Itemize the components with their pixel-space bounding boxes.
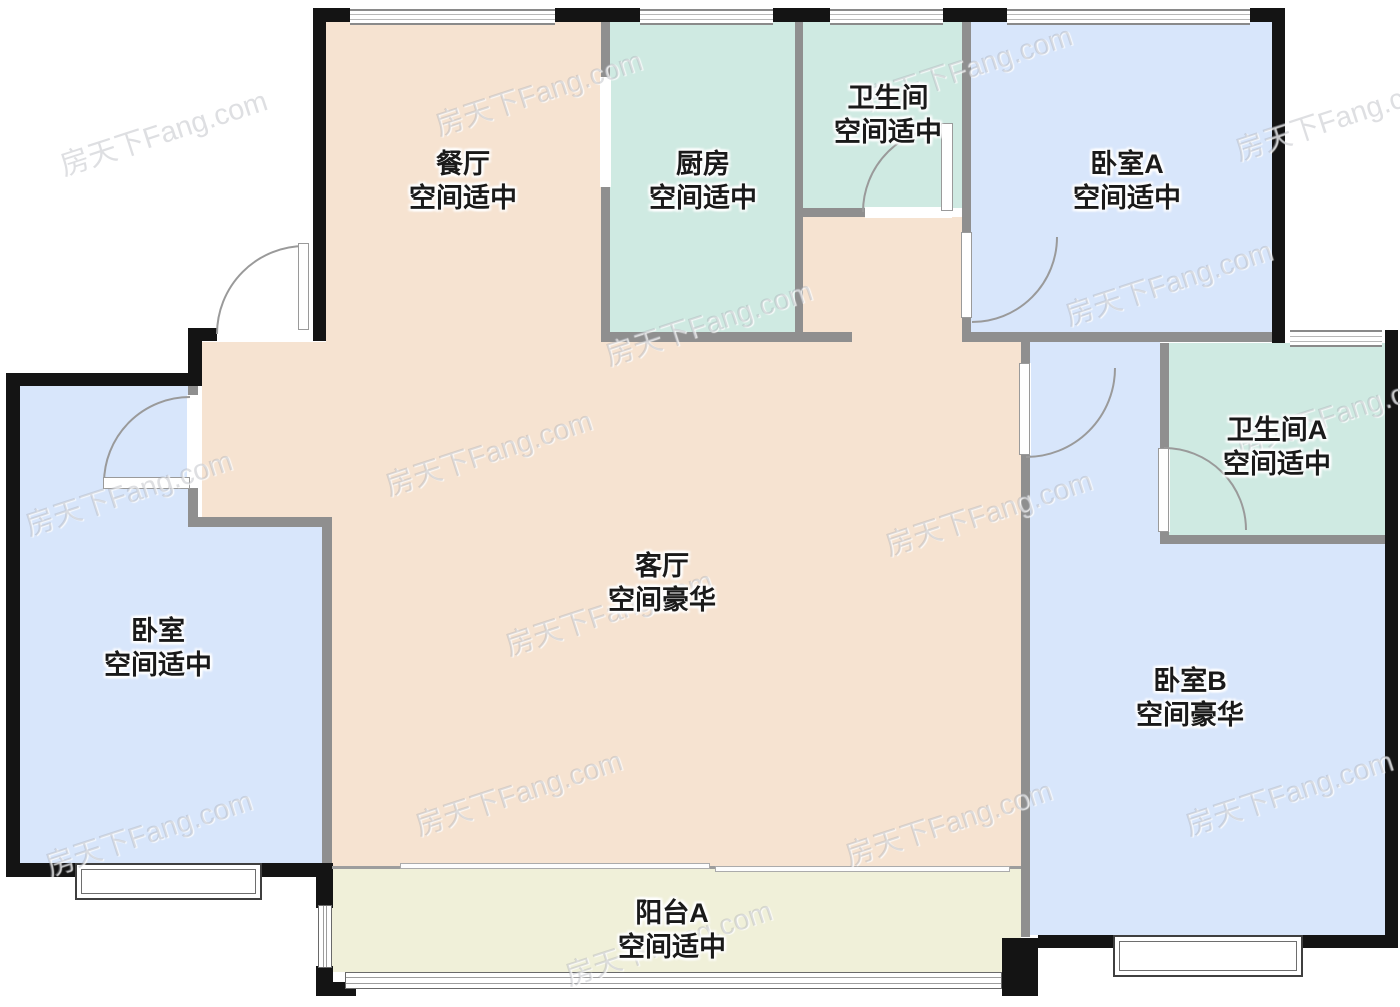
room-name: 卫生间 [834,81,942,115]
door-leaf-bathroom [941,123,953,211]
label-bedroom: 卧室 空间适中 [104,614,212,682]
room-rating: 空间适中 [409,181,517,215]
label-bathroom-a: 卫生间A 空间适中 [1223,413,1331,481]
room-rating: 空间适中 [104,648,212,682]
label-bedroom-a: 卧室A 空间适中 [1073,147,1181,215]
room-name: 阳台A [618,896,726,930]
label-bedroom-b: 卧室B 空间豪华 [1136,664,1244,732]
room-rating: 空间适中 [1073,181,1181,215]
room-rating: 空间适中 [649,181,757,215]
door-leaf-corridor [1019,363,1030,455]
room-name: 厨房 [649,147,757,181]
room-name: 餐厅 [409,147,517,181]
label-bathroom: 卫生间 空间适中 [834,81,942,149]
label-living-room: 客厅 空间豪华 [608,549,716,617]
room-rating: 空间豪华 [608,583,716,617]
label-kitchen: 厨房 空间适中 [649,147,757,215]
room-rating: 空间适中 [618,930,726,964]
room-name: 卫生间A [1223,413,1331,447]
room-name: 客厅 [608,549,716,583]
room-name: 卧室A [1073,147,1181,181]
door-leaf-entry [298,243,309,330]
room-rating: 空间适中 [834,115,942,149]
door-leaf-bedroom-a [961,232,972,318]
floor-plan: 餐厅 空间适中 厨房 空间适中 卫生间 空间适中 卧室A 空间适中 卫生间A 空… [0,0,1400,1007]
room-rating: 空间适中 [1223,447,1331,481]
room-rating: 空间豪华 [1136,698,1244,732]
room-name: 卧室B [1136,664,1244,698]
door-leaf-bathroom-a [1158,448,1169,532]
label-dining-room: 餐厅 空间适中 [409,147,517,215]
room-name: 卧室 [104,614,212,648]
label-balcony: 阳台A 空间适中 [618,896,726,964]
